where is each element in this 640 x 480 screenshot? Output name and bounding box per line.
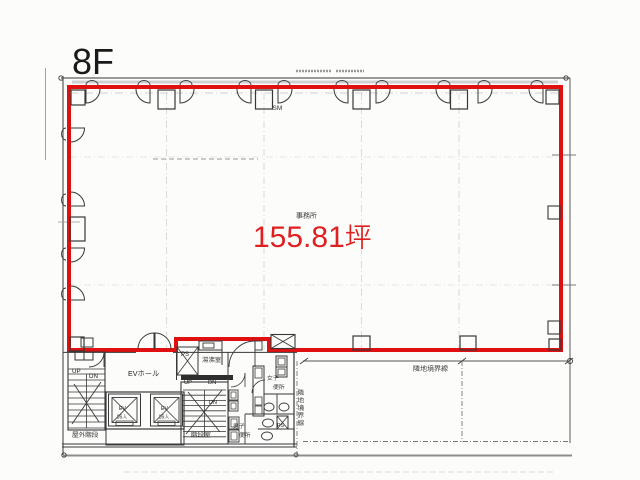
svg-text:SM: SM [273, 105, 283, 112]
svg-text:EV: EV [161, 406, 168, 412]
svg-text:DN: DN [209, 400, 217, 406]
svg-text:DN: DN [208, 380, 216, 386]
svg-text:16: 16 [117, 415, 123, 421]
svg-text:PS: PS [277, 423, 284, 429]
svg-text:PS: PS [181, 352, 189, 358]
svg-text:DN: DN [89, 373, 98, 380]
svg-text:UP: UP [184, 380, 192, 386]
svg-text:UP: UP [72, 368, 81, 375]
svg-text:EV: EV [119, 406, 126, 412]
svg-text:EV: EV [128, 369, 138, 378]
svg-text:155.81: 155.81 [253, 221, 345, 254]
svg-text:16: 16 [159, 415, 165, 421]
svg-text:8F: 8F [72, 41, 114, 82]
